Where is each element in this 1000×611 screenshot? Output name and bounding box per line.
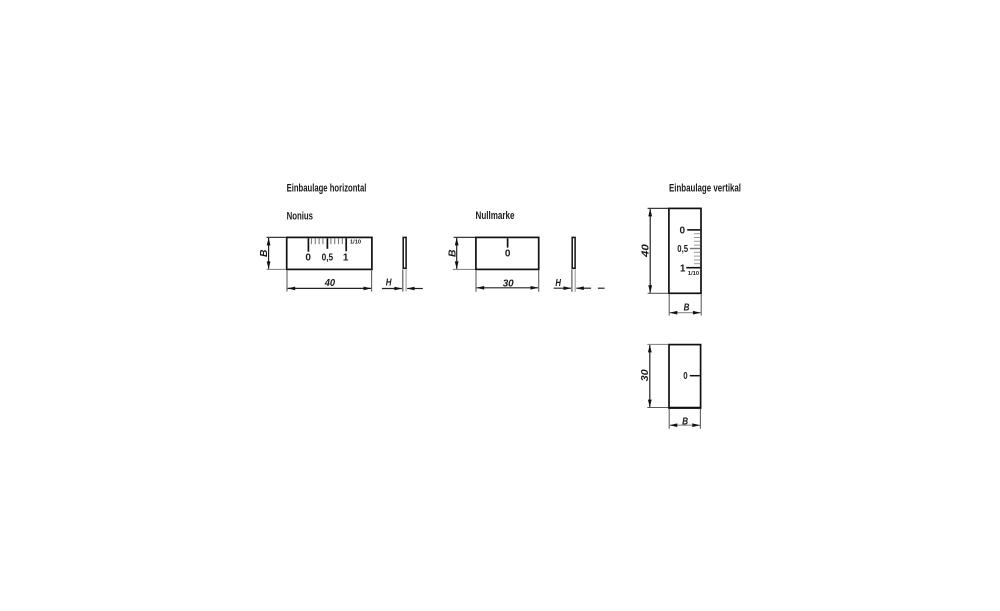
svg-text:40: 40 <box>324 278 336 289</box>
svg-text:0: 0 <box>505 248 511 259</box>
svg-text:30: 30 <box>503 278 514 289</box>
svg-text:B: B <box>682 416 688 427</box>
svg-text:Einbaulage vertikal: Einbaulage vertikal <box>669 183 741 195</box>
svg-text:1: 1 <box>343 252 349 263</box>
svg-text:0: 0 <box>305 252 311 263</box>
svg-text:B: B <box>259 249 270 257</box>
svg-text:0,5: 0,5 <box>322 252 334 263</box>
svg-text:0: 0 <box>683 371 688 382</box>
svg-text:1/10: 1/10 <box>350 240 361 246</box>
svg-text:30: 30 <box>640 369 651 381</box>
svg-text:Nullmarke: Nullmarke <box>476 210 515 222</box>
svg-text:40: 40 <box>641 244 652 258</box>
svg-text:0: 0 <box>680 226 686 237</box>
svg-text:H: H <box>555 278 561 289</box>
svg-text:1: 1 <box>680 264 686 275</box>
svg-text:Einbaulage horizontal: Einbaulage horizontal <box>287 182 367 194</box>
svg-text:B: B <box>684 303 690 314</box>
svg-text:B: B <box>448 249 459 257</box>
svg-text:Nonius: Nonius <box>287 210 313 222</box>
svg-text:0,5: 0,5 <box>677 244 688 255</box>
svg-text:H: H <box>386 278 392 289</box>
svg-text:1/10: 1/10 <box>688 271 699 277</box>
